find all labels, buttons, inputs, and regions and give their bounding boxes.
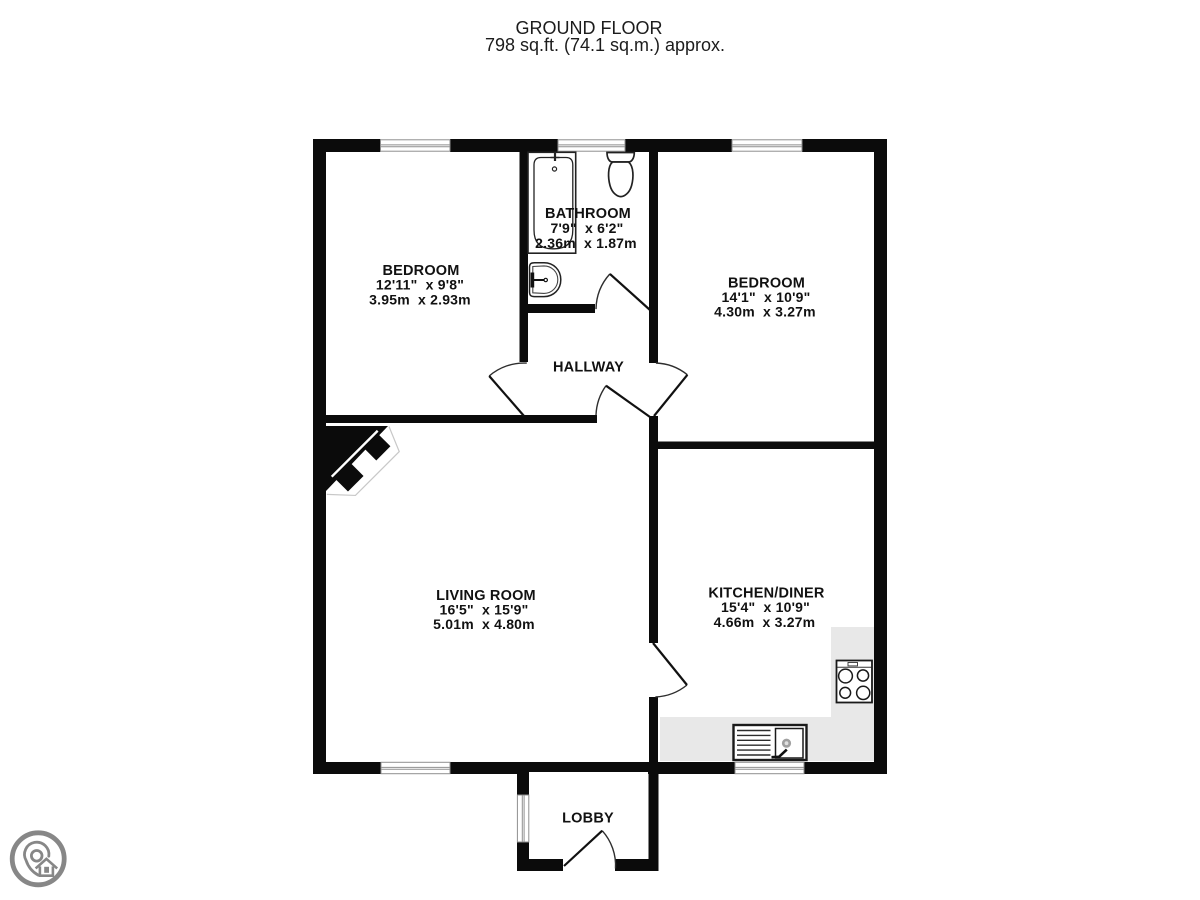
svg-text:LOBBY: LOBBY: [562, 811, 614, 827]
svg-text:5.01m x 4.80m: 5.01m x 4.80m: [433, 616, 535, 632]
svg-text:4.30m x 3.27m: 4.30m x 3.27m: [714, 304, 816, 320]
svg-text:7'9" x 6'2": 7'9" x 6'2": [551, 220, 624, 236]
svg-text:12'11" x 9'8": 12'11" x 9'8": [376, 277, 464, 293]
svg-text:4.66m x 3.27m: 4.66m x 3.27m: [714, 614, 816, 630]
svg-text:3.95m x 2.93m: 3.95m x 2.93m: [369, 292, 471, 308]
svg-text:HALLWAY: HALLWAY: [553, 360, 624, 376]
svg-text:15'4" x 10'9": 15'4" x 10'9": [721, 599, 810, 615]
svg-text:2.36m x 1.87m: 2.36m x 1.87m: [535, 235, 637, 251]
svg-text:798 sq.ft. (74.1 sq.m.) approx: 798 sq.ft. (74.1 sq.m.) approx.: [485, 35, 725, 55]
